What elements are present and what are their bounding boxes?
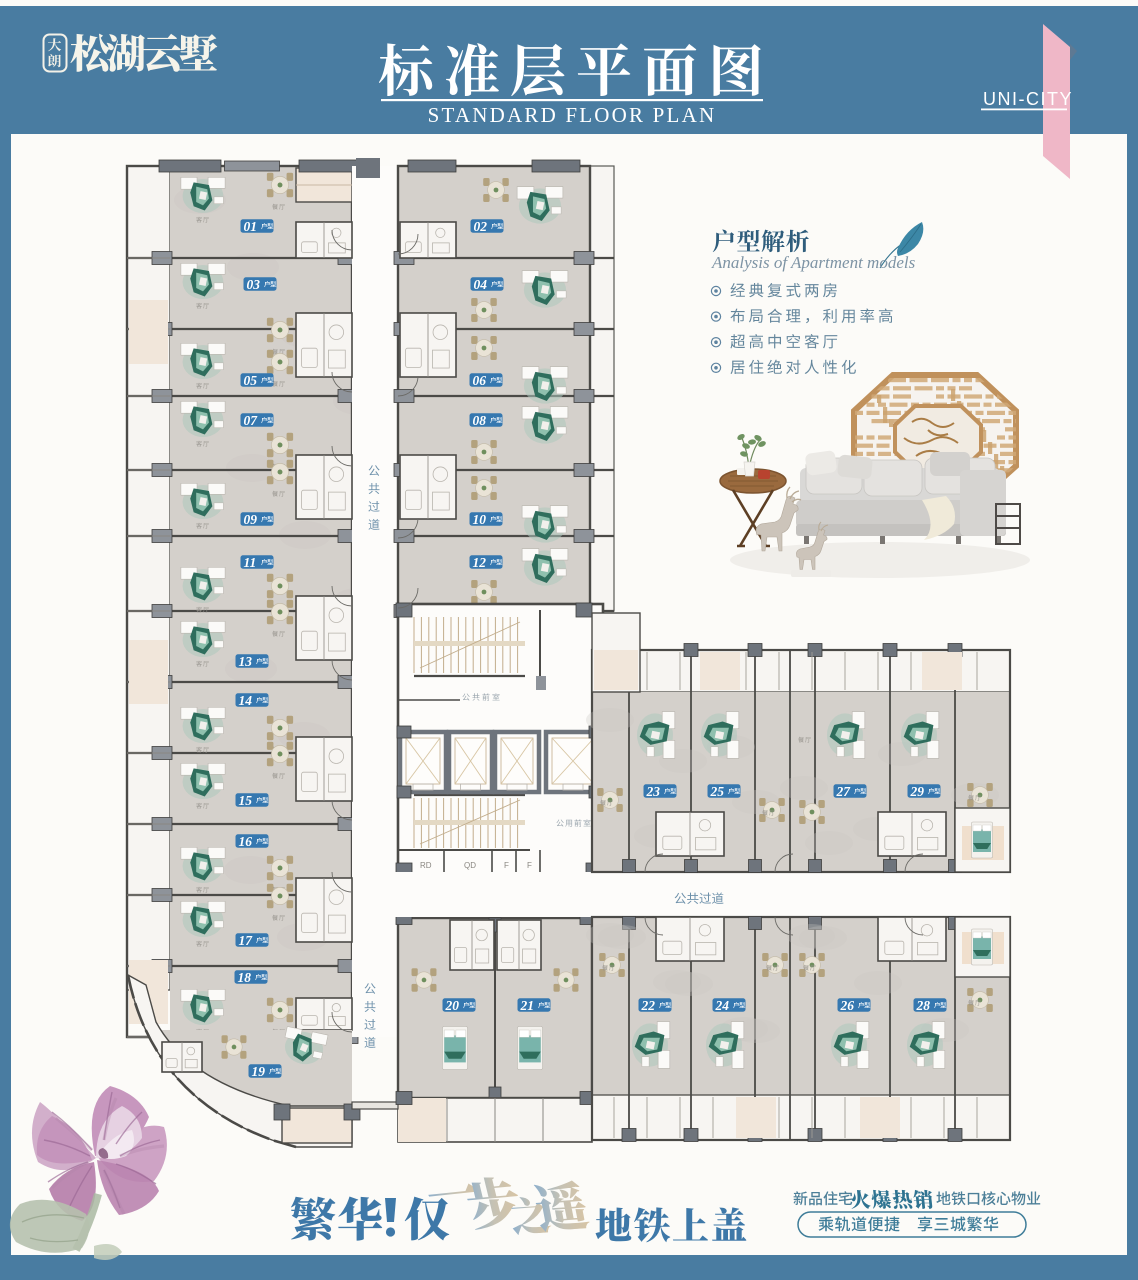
- svg-text:RD: RD: [420, 861, 432, 870]
- svg-text:15: 15: [239, 793, 253, 808]
- svg-text:21: 21: [520, 998, 535, 1013]
- svg-text:09: 09: [244, 512, 258, 527]
- svg-text:14: 14: [239, 693, 253, 708]
- svg-text:29: 29: [910, 784, 925, 799]
- svg-text:06: 06: [473, 373, 487, 388]
- svg-text:27: 27: [836, 784, 852, 799]
- svg-text:18: 18: [238, 970, 252, 985]
- svg-text:08: 08: [473, 413, 487, 428]
- svg-text:07: 07: [244, 413, 259, 428]
- svg-text:STANDARD FLOOR PLAN: STANDARD FLOOR PLAN: [428, 103, 717, 127]
- svg-text:13: 13: [239, 654, 253, 669]
- svg-text:F: F: [527, 861, 532, 870]
- svg-text:20: 20: [445, 998, 460, 1013]
- svg-text:28: 28: [916, 998, 931, 1013]
- svg-text:24: 24: [715, 998, 730, 1013]
- svg-text:04: 04: [474, 277, 488, 292]
- svg-text:10: 10: [473, 512, 487, 527]
- svg-text:01: 01: [244, 219, 258, 234]
- svg-text:UNI-CITY: UNI-CITY: [983, 89, 1073, 109]
- svg-text:25: 25: [710, 784, 725, 799]
- svg-text:19: 19: [252, 1064, 266, 1079]
- svg-text:QD: QD: [464, 861, 476, 870]
- svg-text:17: 17: [239, 933, 254, 948]
- svg-text:16: 16: [239, 834, 253, 849]
- svg-text:03: 03: [247, 277, 261, 292]
- svg-text:12: 12: [473, 555, 487, 570]
- svg-text:05: 05: [244, 373, 258, 388]
- svg-text:23: 23: [646, 784, 661, 799]
- svg-text:26: 26: [840, 998, 855, 1013]
- svg-text:F: F: [504, 861, 509, 870]
- svg-text:22: 22: [641, 998, 656, 1013]
- svg-text:02: 02: [474, 219, 488, 234]
- svg-text:Analysis of Apartment models: Analysis of Apartment models: [711, 253, 916, 272]
- svg-text:11: 11: [244, 555, 257, 570]
